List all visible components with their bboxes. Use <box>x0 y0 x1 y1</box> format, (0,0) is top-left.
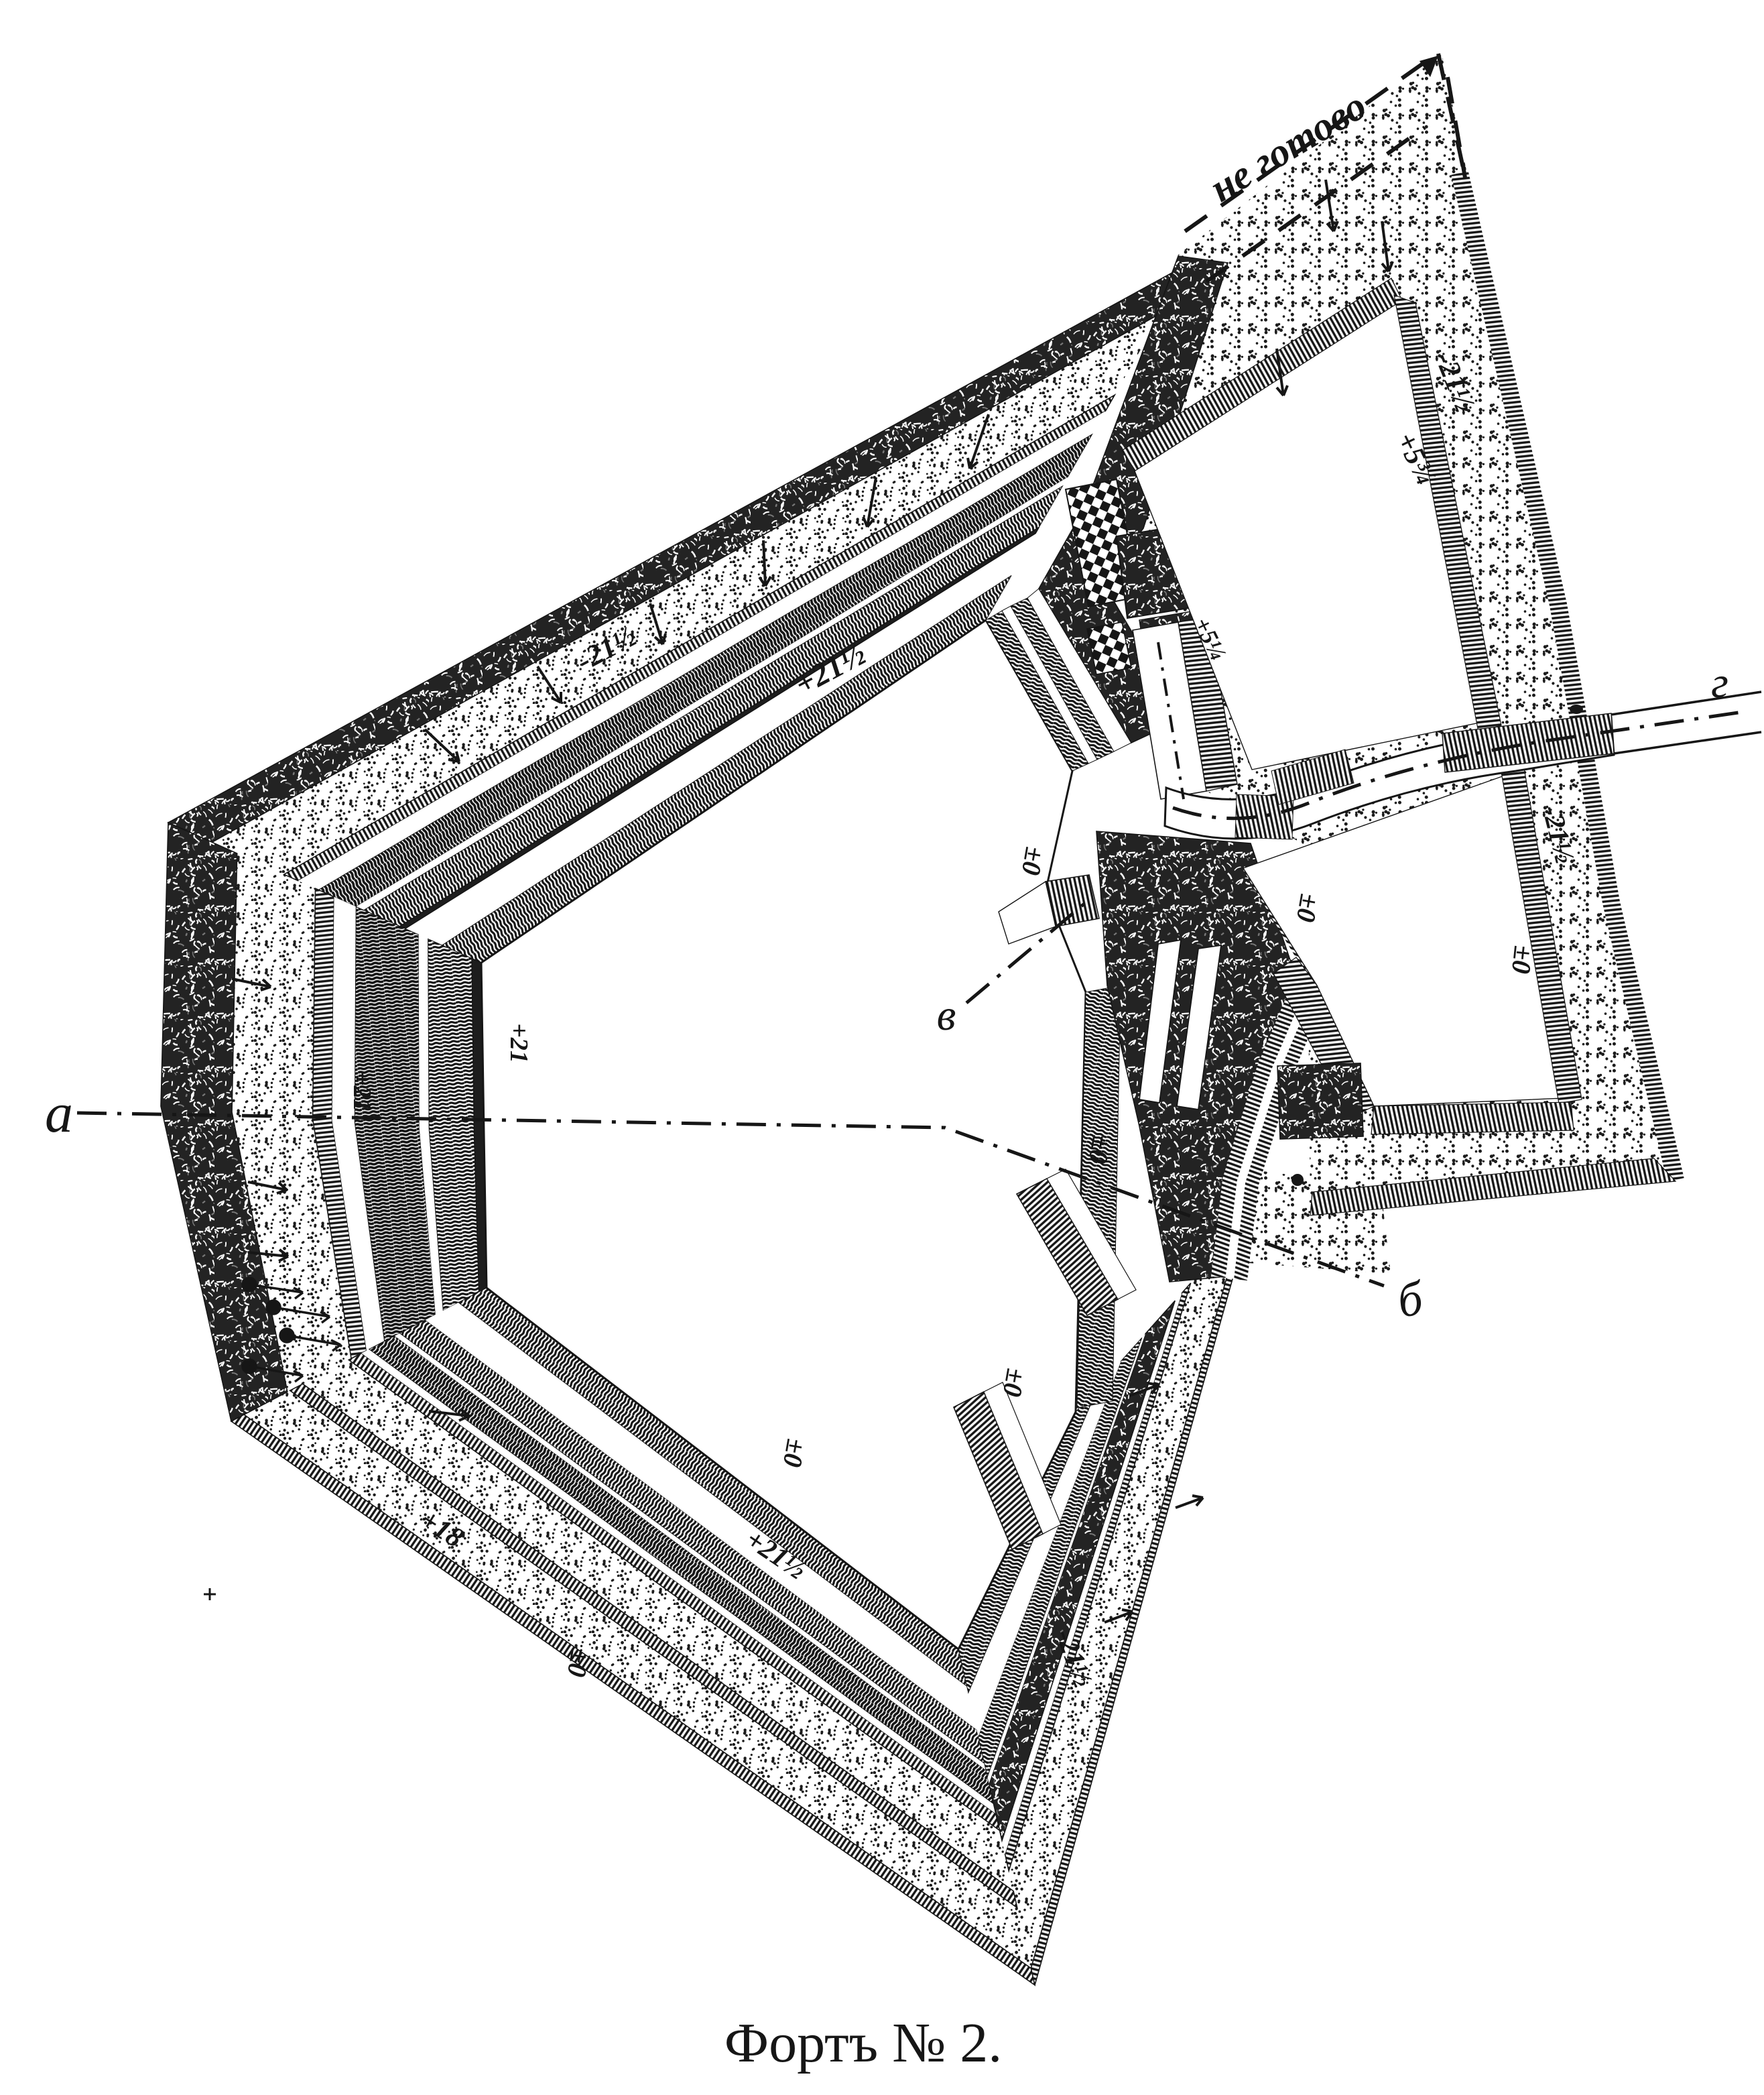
svg-text:а: а <box>45 1082 73 1144</box>
svg-text:±0: ±0 <box>561 1647 596 1679</box>
svg-text:±0: ±0 <box>1082 1133 1117 1166</box>
svg-text:±0: ±0 <box>1015 845 1050 878</box>
svg-text:г: г <box>1711 658 1728 707</box>
svg-text:±0: ±0 <box>997 1366 1031 1399</box>
svg-text:+21: +21 <box>505 1023 533 1063</box>
svg-text:в: в <box>937 991 956 1040</box>
svg-text:±0: ±0 <box>1506 944 1539 975</box>
svg-text:±0: ±0 <box>777 1437 812 1470</box>
svg-text:+21: +21 <box>348 1071 376 1112</box>
svg-text:Фортъ № 2.: Фортъ № 2. <box>724 2012 1003 2074</box>
svg-text:±0: ±0 <box>1290 892 1325 924</box>
